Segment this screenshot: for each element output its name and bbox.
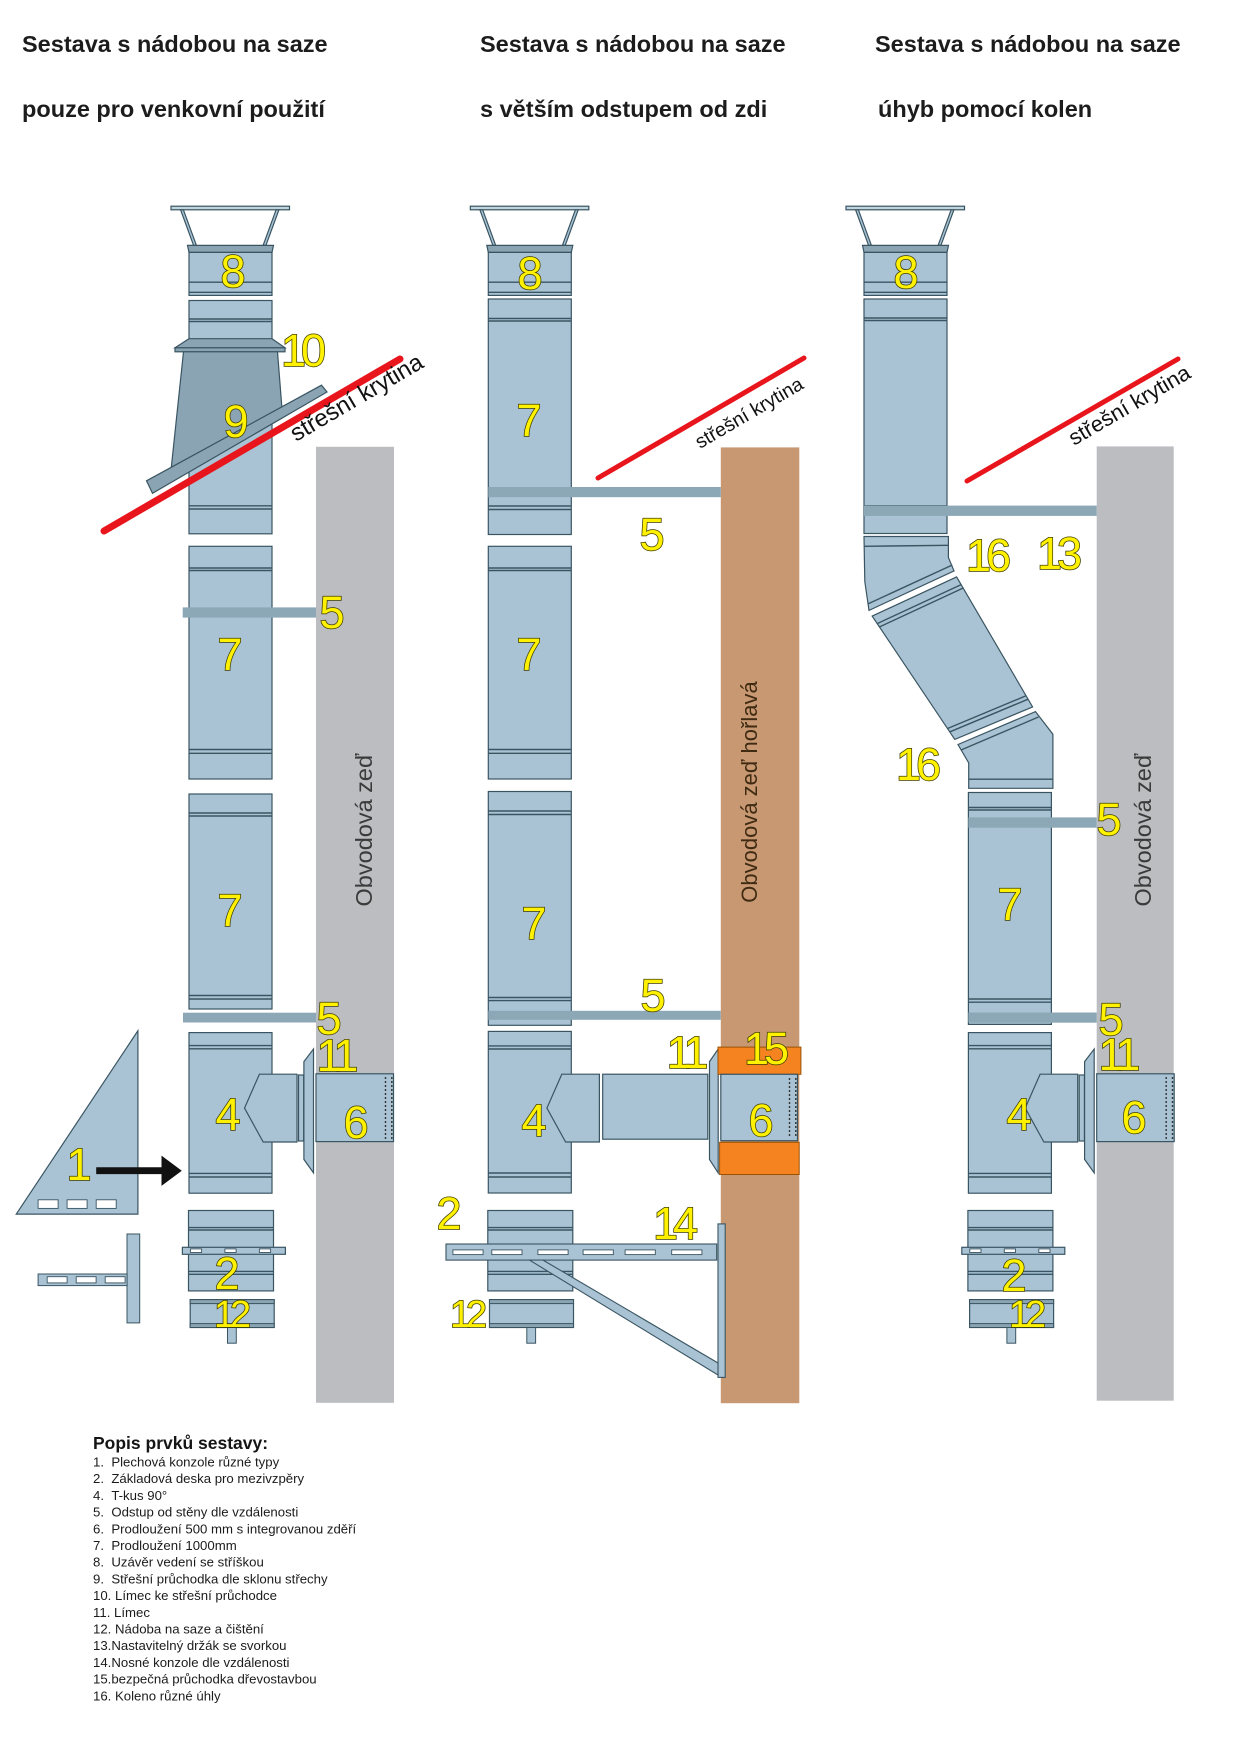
svg-text:10. Límec ke střešní průchodce: 10. Límec ke střešní průchodce	[93, 1588, 277, 1603]
svg-text:7: 7	[217, 629, 242, 680]
svg-text:7: 7	[521, 898, 546, 949]
svg-text:4: 4	[521, 1095, 546, 1146]
svg-text:14.Nosné konzole dle vzdálenos: 14.Nosné konzole dle vzdálenosti	[93, 1655, 290, 1670]
svg-text:2: 2	[214, 1248, 239, 1299]
svg-text:úhyb pomocí kolen: úhyb pomocí kolen	[878, 96, 1092, 122]
svg-text:Obvodová zeď: Obvodová zeď	[1130, 753, 1156, 906]
svg-text:11: 11	[667, 1027, 707, 1078]
svg-text:10: 10	[281, 325, 325, 376]
svg-text:7: 7	[516, 629, 541, 680]
svg-text:11: 11	[317, 1030, 357, 1081]
svg-text:6: 6	[343, 1097, 368, 1148]
svg-text:15.bezpečná průchodka dřevosta: 15.bezpečná průchodka dřevostavbou	[93, 1672, 317, 1687]
svg-text:2. Základová deska pro mezivz: 2. Základová deska pro mezivzpěry	[93, 1471, 305, 1486]
svg-text:16. Koleno různé úhly: 16. Koleno různé úhly	[93, 1688, 221, 1703]
svg-text:12: 12	[450, 1294, 486, 1336]
svg-text:7: 7	[516, 395, 541, 446]
svg-text:Obvodová zeď: Obvodová zeď	[351, 753, 377, 906]
svg-text:2: 2	[436, 1188, 461, 1239]
svg-text:11: 11	[1099, 1029, 1139, 1080]
svg-text:11. Límec: 11. Límec	[93, 1605, 150, 1620]
svg-text:4: 4	[1006, 1089, 1031, 1140]
svg-text:5. Odstup od stěny dle vzdále: 5. Odstup od stěny dle vzdálenosti	[93, 1505, 298, 1520]
svg-text:13.Nastavitelný držák se svork: 13.Nastavitelný držák se svorkou	[93, 1638, 287, 1653]
svg-text:8. Uzávěr vedení se stříškou: 8. Uzávěr vedení se stříškou	[93, 1555, 264, 1570]
svg-text:14: 14	[653, 1198, 697, 1249]
svg-text:4. T-kus 90°: 4. T-kus 90°	[93, 1488, 167, 1503]
svg-text:Popis prvků sestavy:: Popis prvků sestavy:	[93, 1433, 268, 1453]
svg-text:s větším odstupem od zdi: s větším odstupem od zdi	[480, 96, 767, 122]
svg-text:6: 6	[748, 1095, 773, 1146]
svg-text:Obvodová zeď hořlavá: Obvodová zeď hořlavá	[737, 681, 762, 903]
svg-text:1. Plechová konzole různé typ: 1. Plechová konzole různé typy	[93, 1455, 280, 1470]
svg-text:Sestava s nádobou na saze: Sestava s nádobou na saze	[22, 31, 328, 57]
svg-text:12: 12	[1009, 1294, 1045, 1336]
svg-text:16: 16	[896, 739, 940, 790]
svg-text:Sestava s nádobou na saze: Sestava s nádobou na saze	[480, 31, 786, 57]
svg-text:12: 12	[214, 1294, 250, 1336]
svg-text:13: 13	[1037, 528, 1081, 579]
svg-text:6. Prodloužení 500 mm s integ: 6. Prodloužení 500 mm s integrovanou zdě…	[93, 1521, 357, 1536]
svg-text:9: 9	[223, 396, 248, 447]
svg-text:16: 16	[966, 530, 1010, 581]
svg-text:7. Prodloužení 1000mm: 7. Prodloužení 1000mm	[93, 1538, 237, 1553]
svg-text:5: 5	[319, 587, 344, 638]
svg-text:pouze pro venkovní použití: pouze pro venkovní použití	[22, 96, 326, 122]
svg-text:4: 4	[215, 1089, 240, 1140]
svg-text:7: 7	[217, 885, 242, 936]
svg-text:8: 8	[893, 247, 918, 298]
svg-text:8: 8	[517, 248, 542, 299]
svg-text:5: 5	[639, 509, 664, 560]
svg-text:6: 6	[1121, 1092, 1146, 1143]
svg-text:9. Střešní průchodka dle sklo: 9. Střešní průchodka dle sklonu střechy	[93, 1571, 328, 1586]
svg-text:Sestava s nádobou na saze: Sestava s nádobou na saze	[875, 31, 1181, 57]
svg-text:8: 8	[220, 246, 245, 297]
svg-text:7: 7	[997, 879, 1022, 930]
svg-text:1: 1	[66, 1139, 91, 1190]
svg-text:5: 5	[640, 970, 665, 1021]
svg-text:5: 5	[1096, 794, 1121, 845]
svg-text:15: 15	[744, 1023, 788, 1074]
svg-text:12. Nádoba na saze a čištění: 12. Nádoba na saze a čištění	[93, 1622, 264, 1637]
